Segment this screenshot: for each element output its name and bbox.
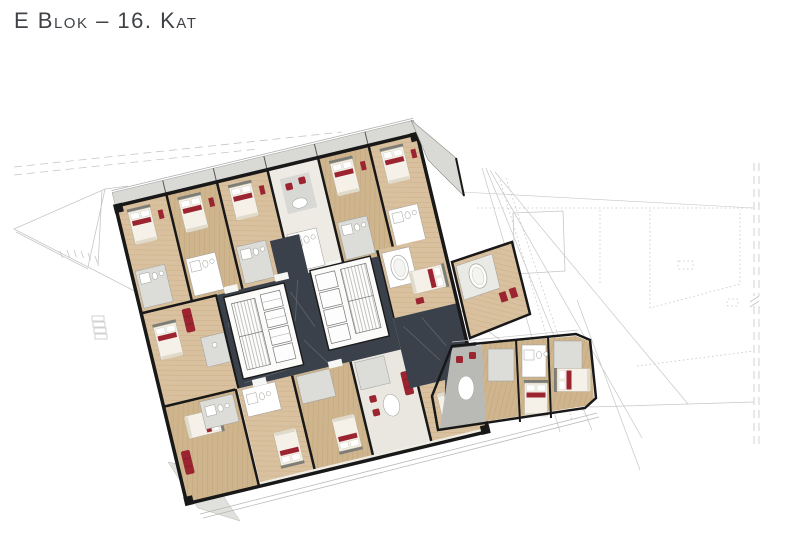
floor-plan-drawing (0, 0, 800, 535)
right-wing (432, 330, 596, 430)
floor-plan-page: E Blok – 16. Kat (0, 0, 800, 535)
main-building-block (110, 118, 491, 506)
